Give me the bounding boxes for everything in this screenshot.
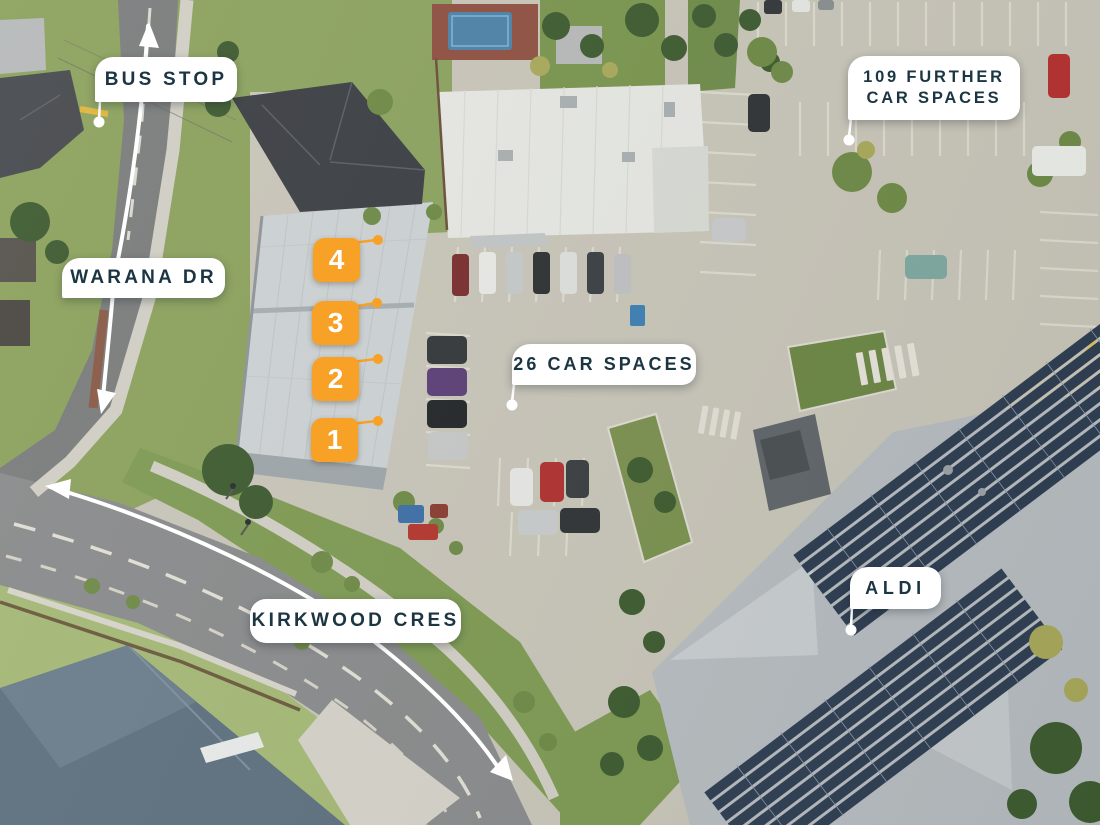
- further-car-spaces-line1: 109 FURTHER: [863, 67, 1005, 88]
- arrow-left-icon: [45, 479, 71, 499]
- annotation-overlay: [0, 0, 1100, 825]
- arrow-down-icon: [97, 389, 116, 414]
- further-car-spaces-label: 109 FURTHER CAR SPACES: [848, 56, 1020, 120]
- aldi-dot: [846, 625, 857, 636]
- unit-4-badge: 4: [313, 238, 360, 282]
- further-car-spaces-line2: CAR SPACES: [866, 88, 1001, 109]
- aerial-site-map: BUS STOP WARANA DR 109 FURTHER CAR SPACE…: [0, 0, 1100, 825]
- unit-leader-dots: [372, 235, 383, 426]
- bus-stop-dot: [94, 117, 105, 128]
- bus-stop-label: BUS STOP: [95, 57, 237, 102]
- further-spaces-dot: [844, 135, 855, 146]
- arrow-up-icon: [139, 22, 159, 48]
- car-spaces-26-label: 26 CAR SPACES: [512, 344, 696, 385]
- unit-1-badge: 1: [311, 418, 358, 462]
- aldi-label: ALDI: [850, 567, 941, 609]
- unit-2-badge: 2: [312, 357, 359, 401]
- warana-dr-label: WARANA DR: [62, 258, 225, 298]
- label-leader-dots: [94, 117, 857, 636]
- kirkwood-cres-label: KIRKWOOD CRES: [250, 599, 461, 643]
- car-spaces-dot: [507, 400, 518, 411]
- unit-3-badge: 3: [312, 301, 359, 345]
